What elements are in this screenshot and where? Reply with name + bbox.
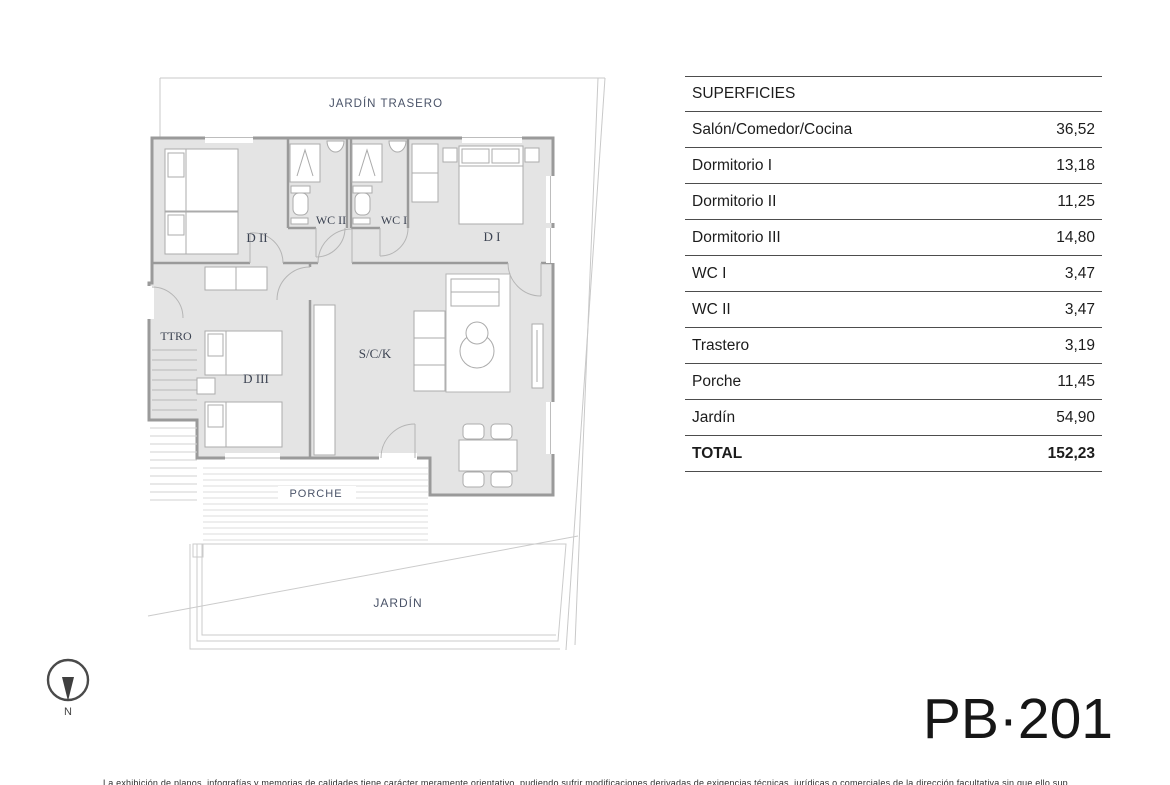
surfaces-header-label: SUPERFICIES xyxy=(692,85,795,103)
compass-needle-icon xyxy=(62,677,74,701)
row-label: WC I xyxy=(692,265,726,283)
table-row: Dormitorio III 14,80 xyxy=(685,220,1102,256)
row-value: 13,18 xyxy=(1056,157,1095,175)
plan-code: PB·201 xyxy=(868,686,1113,752)
label-wc1: WC I xyxy=(381,213,407,227)
label-wc2: WC II xyxy=(316,213,346,227)
label-d3: D III xyxy=(243,371,269,386)
row-label: Porche xyxy=(692,373,741,391)
label-porche: PORCHE xyxy=(289,488,342,500)
total-value: 152,23 xyxy=(1048,445,1095,463)
row-label: Trastero xyxy=(692,337,749,355)
row-value: 11,45 xyxy=(1057,373,1095,391)
table-row: Dormitorio II 11,25 xyxy=(685,184,1102,220)
table-row: WC I 3,47 xyxy=(685,256,1102,292)
row-label: WC II xyxy=(692,301,731,319)
plan-sheet: JARDÍN TRASERO D II WC II WC I D I TTRO … xyxy=(0,0,1170,785)
row-value: 36,52 xyxy=(1056,121,1095,139)
table-row-total: TOTAL 152,23 xyxy=(685,436,1102,472)
label-ttro: TTRO xyxy=(160,329,192,343)
table-row: Jardín 54,90 xyxy=(685,400,1102,436)
row-value: 54,90 xyxy=(1056,409,1095,427)
row-label: Dormitorio I xyxy=(692,157,772,175)
table-row: Salón/Comedor/Cocina 36,52 xyxy=(685,112,1102,148)
table-row: WC II 3,47 xyxy=(685,292,1102,328)
label-jardin-trasero: JARDÍN TRASERO xyxy=(329,97,443,110)
row-value: 11,25 xyxy=(1057,193,1095,211)
total-label: TOTAL xyxy=(692,445,742,463)
label-d2: D II xyxy=(246,230,267,245)
row-value: 3,19 xyxy=(1065,337,1095,355)
table-row: Dormitorio I 13,18 xyxy=(685,148,1102,184)
garden-boundary xyxy=(148,536,578,649)
row-value: 3,47 xyxy=(1065,265,1095,283)
label-sck: S/C/K xyxy=(359,346,392,361)
porch-hatch xyxy=(203,468,428,540)
row-label: Dormitorio II xyxy=(692,193,776,211)
compass-north-label: N xyxy=(64,706,72,718)
surfaces-table-header: SUPERFICIES xyxy=(685,76,1102,112)
label-jardin: JARDÍN xyxy=(373,595,422,610)
surfaces-table: SUPERFICIES Salón/Comedor/Cocina 36,52 D… xyxy=(685,76,1102,472)
floor-plan: JARDÍN TRASERO D II WC II WC I D I TTRO … xyxy=(0,0,660,680)
row-value: 14,80 xyxy=(1056,229,1095,247)
table-row: Porche 11,45 xyxy=(685,364,1102,400)
row-label: Jardín xyxy=(692,409,735,427)
exterior-steps xyxy=(150,428,197,500)
label-d1: D I xyxy=(484,229,501,244)
row-label: Dormitorio III xyxy=(692,229,781,247)
bedroom2-furniture xyxy=(165,149,238,254)
row-label: Salón/Comedor/Cocina xyxy=(692,121,852,139)
north-compass: N xyxy=(40,652,100,724)
plot-diagonal-line xyxy=(148,536,578,616)
footer-disclaimer: La exhibición de planos, infografías y m… xyxy=(103,778,1068,785)
row-value: 3,47 xyxy=(1065,301,1095,319)
table-row: Trastero 3,19 xyxy=(685,328,1102,364)
